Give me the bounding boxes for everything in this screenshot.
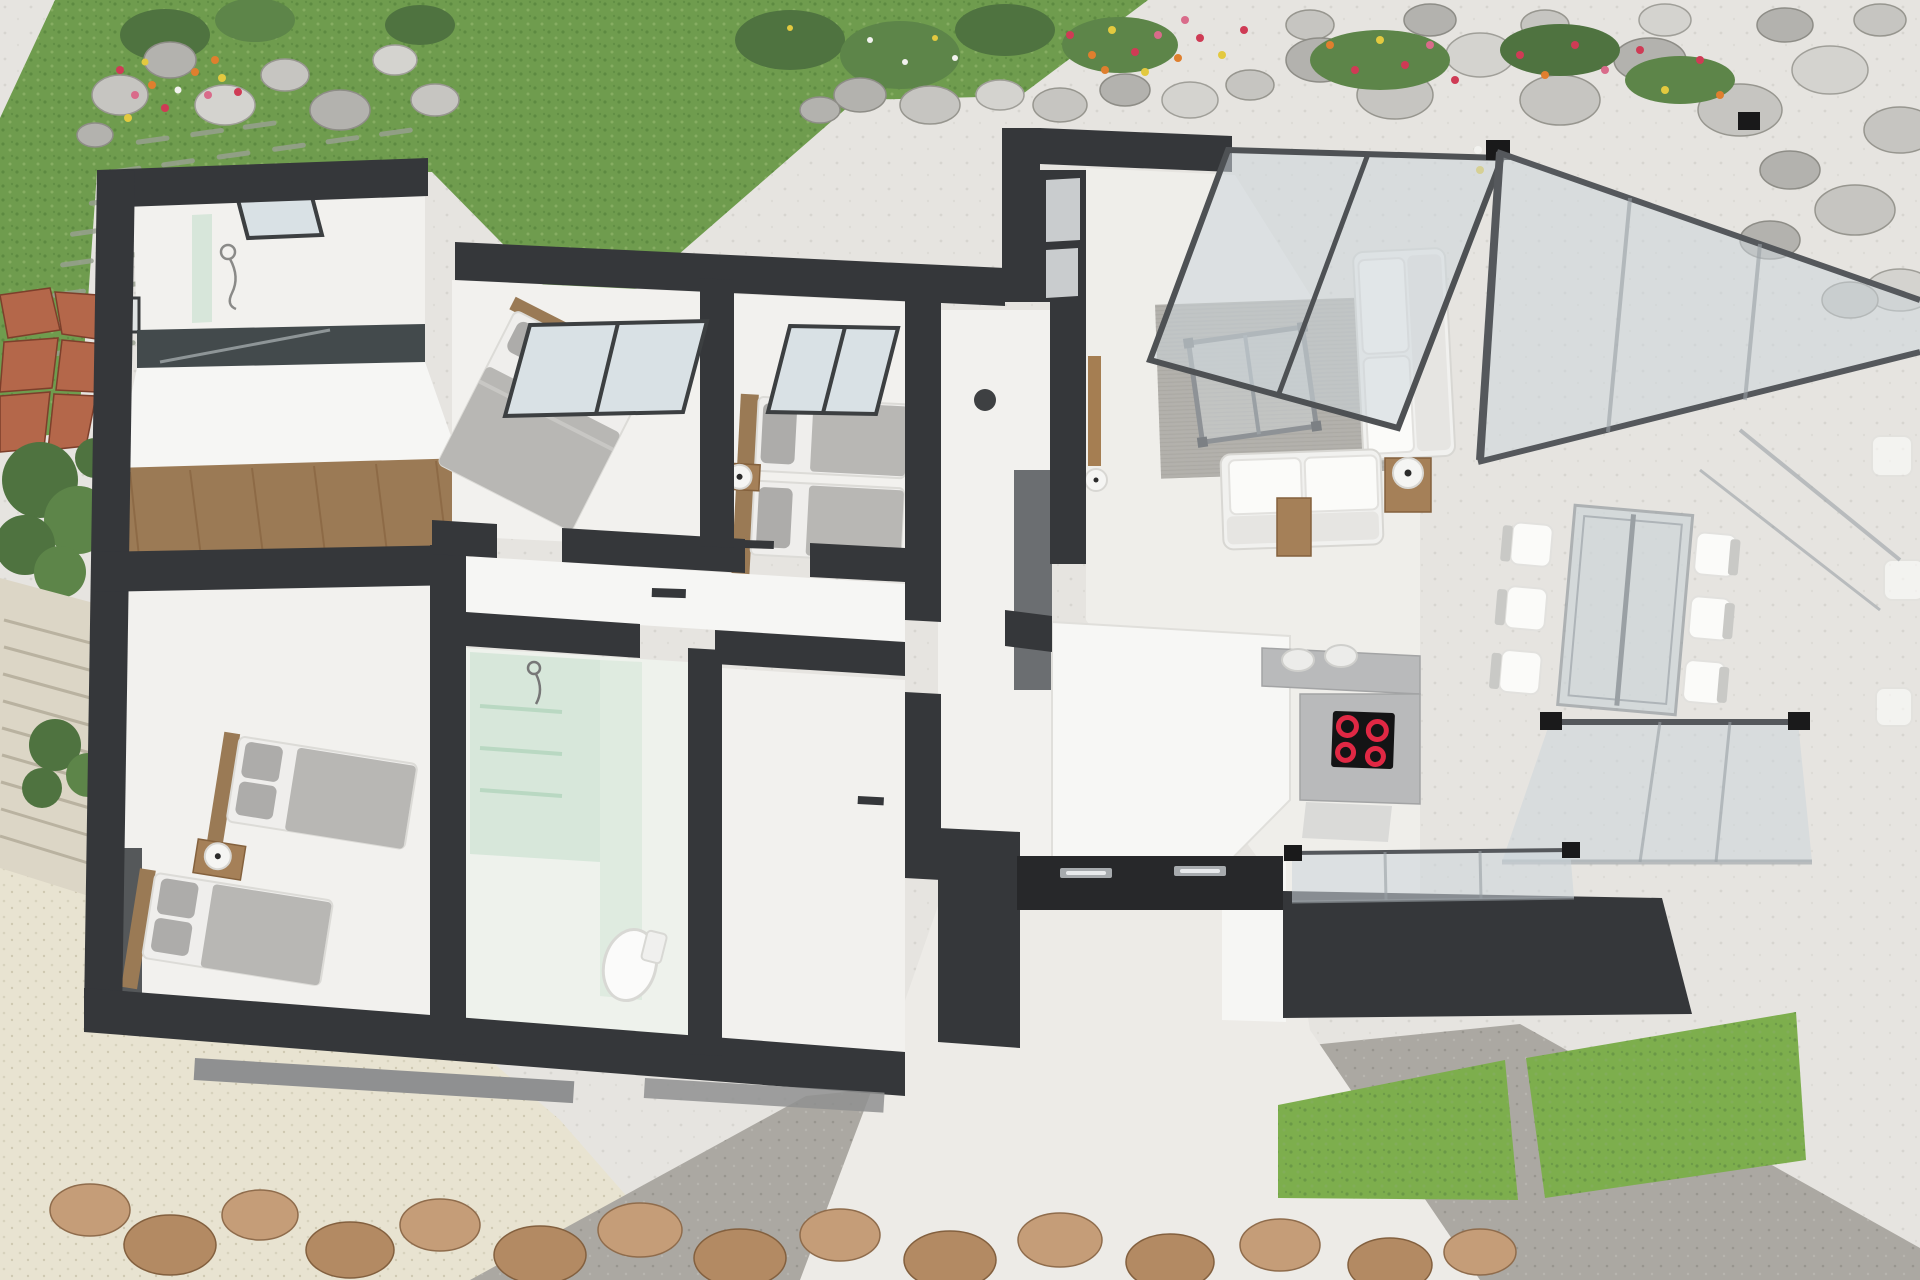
- room-hallway: [938, 310, 1052, 875]
- ceiling-light: [1060, 868, 1112, 878]
- entrance: [1017, 856, 1283, 910]
- shower-glass-panel: [192, 214, 212, 323]
- bar-stool: [1325, 645, 1357, 667]
- post-cap: [1738, 112, 1760, 130]
- cooktop: [1331, 711, 1395, 769]
- wall-entrance-left: [938, 828, 1020, 1048]
- wall-bath-divider: [688, 648, 722, 1056]
- interior-window-pane: [1046, 248, 1078, 298]
- sideboard: [1088, 356, 1101, 466]
- scene-canvas: [0, 0, 1920, 1280]
- interior-window-band: [1040, 170, 1086, 302]
- post-cap: [1284, 845, 1302, 861]
- dining-chair: [1499, 649, 1543, 694]
- wall-kitchen-south: [1283, 891, 1692, 1018]
- kitchen-cabinet-wood: [1277, 498, 1311, 556]
- kitchen-lower-cabinet: [1302, 802, 1392, 842]
- wall-corridor-north-3: [810, 543, 905, 582]
- door-top: [652, 588, 686, 598]
- wall-bedroom1-east: [430, 545, 466, 1055]
- skylight-window: [238, 197, 322, 238]
- floorplan-render: [0, 0, 1920, 1280]
- wall-bedroom-divider: [700, 278, 734, 548]
- post-cap: [1562, 842, 1580, 858]
- entrance-ceiling: [1017, 856, 1283, 910]
- room-bathroom-green: [466, 648, 688, 1052]
- dining-chair: [1510, 522, 1554, 567]
- post-cap: [1788, 712, 1810, 730]
- decor-object: [974, 389, 996, 411]
- wall-porch-vertical: [1002, 128, 1040, 302]
- interior-window-pane: [1046, 178, 1080, 242]
- room-bedroom-single: [86, 562, 466, 1046]
- door-top: [744, 540, 774, 549]
- wall-living-west: [1050, 302, 1086, 564]
- room-small: [722, 668, 905, 1060]
- wall-bedroomwing-east-upper: [905, 268, 941, 622]
- shower-glass-panel: [470, 652, 600, 862]
- bar-stool: [1282, 649, 1314, 671]
- dining-chair: [1504, 586, 1548, 631]
- wall-corridor-north-1: [432, 520, 497, 558]
- ceiling-light: [1174, 866, 1226, 876]
- door-handle-mark: [858, 796, 884, 805]
- room-bathroom-top: [115, 192, 460, 470]
- wall-bedroomwing-east-lower: [905, 692, 941, 880]
- hallway-pillar-wall: [1014, 470, 1052, 690]
- glass-fence: [1284, 842, 1580, 902]
- wall-hallway-stub: [1005, 610, 1052, 652]
- post-cap: [1540, 712, 1562, 730]
- dining-set: [1488, 499, 1743, 719]
- wall-hall-south: [95, 545, 462, 592]
